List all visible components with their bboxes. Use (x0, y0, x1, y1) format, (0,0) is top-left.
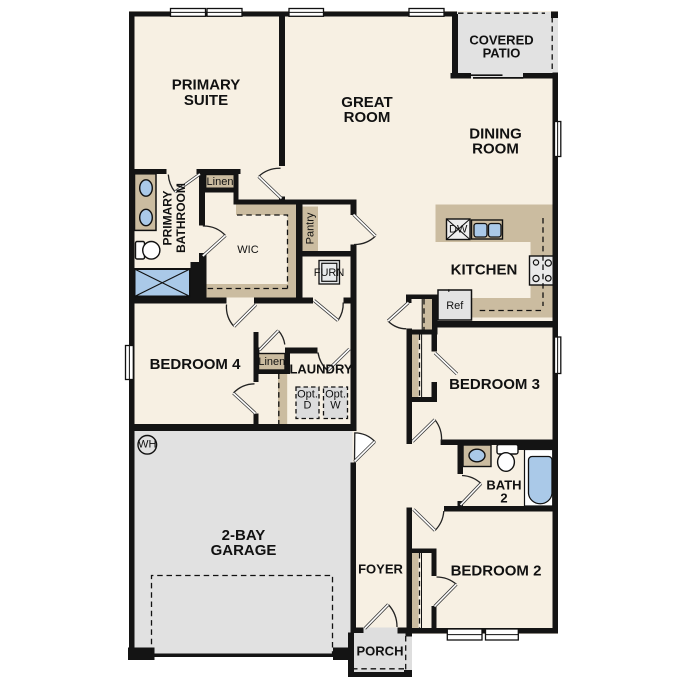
svg-text:LAUNDRY: LAUNDRY (289, 362, 352, 377)
svg-text:ROOM: ROOM (344, 109, 391, 126)
svg-text:Linen: Linen (207, 176, 234, 188)
svg-text:Pantry: Pantry (305, 212, 317, 244)
svg-text:BEDROOM 3: BEDROOM 3 (449, 376, 540, 393)
svg-text:ROOM: ROOM (472, 141, 519, 158)
svg-text:FURN: FURN (314, 267, 345, 279)
svg-text:PRIMARY: PRIMARY (161, 191, 175, 246)
svg-text:KITCHEN: KITCHEN (451, 261, 518, 278)
svg-text:FOYER: FOYER (358, 561, 403, 576)
svg-text:BEDROOM 4: BEDROOM 4 (150, 356, 242, 373)
svg-text:2: 2 (500, 491, 507, 506)
svg-text:Linen: Linen (258, 356, 285, 368)
svg-text:BEDROOM 2: BEDROOM 2 (451, 562, 542, 579)
svg-text:W: W (330, 400, 341, 412)
svg-text:DW: DW (449, 224, 468, 236)
svg-text:GARAGE: GARAGE (211, 542, 277, 559)
svg-text:SUITE: SUITE (184, 92, 228, 109)
svg-text:BATHROOM: BATHROOM (174, 183, 188, 253)
svg-text:Ref: Ref (446, 300, 464, 312)
svg-text:D: D (304, 400, 312, 412)
svg-text:PORCH: PORCH (357, 643, 404, 658)
svg-text:WH: WH (138, 439, 156, 451)
svg-text:PATIO: PATIO (483, 45, 521, 60)
svg-text:WIC: WIC (237, 244, 258, 256)
